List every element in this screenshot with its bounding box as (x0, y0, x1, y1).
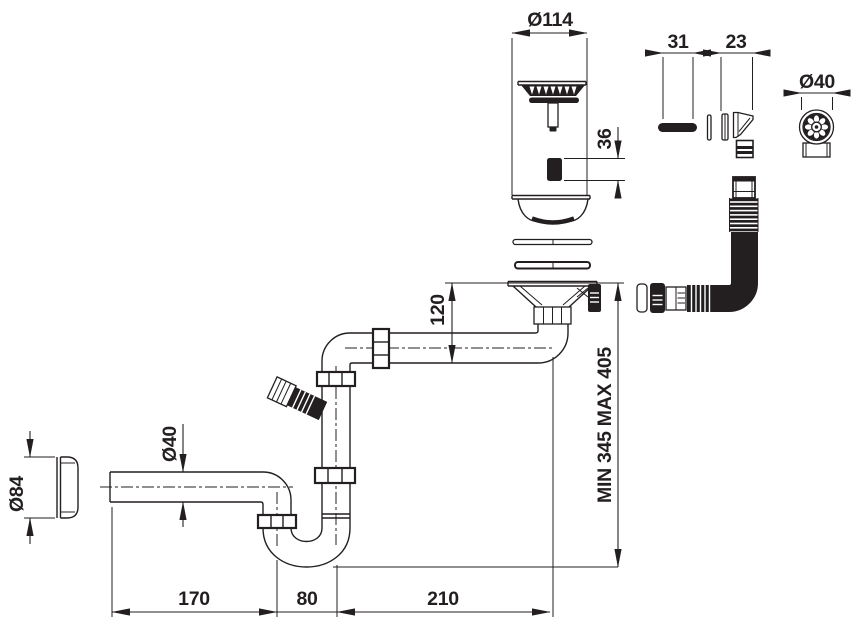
dim-hose-end-diameter: Ø40 (784, 71, 850, 93)
dim-drop-height: 120 (427, 283, 452, 363)
trap-nut-right (315, 468, 355, 483)
outlet-pipe (110, 472, 291, 505)
flat-gasket (513, 240, 592, 245)
dim-label-cone-width: 23 (725, 31, 747, 53)
dim-label-screw-height: 36 (594, 128, 616, 150)
corrugated-hose (687, 177, 758, 312)
dim-label-install-height: MIN 345 MAX 405 (594, 347, 616, 503)
dim-label-drop-height: 120 (427, 294, 449, 326)
hose-nut (650, 283, 665, 313)
dim-label-outlet-length: 170 (178, 588, 210, 610)
drawing-canvas: Ø114 36 31 23 Ø40 120 MIN 345 MAX 405 Ø4… (0, 0, 864, 642)
dim-label-pipe-diameter: Ø40 (159, 426, 181, 462)
hose-connector (666, 287, 686, 310)
dim-label-trap-width: 80 (296, 588, 318, 610)
dim-label-hose-end-diameter: Ø40 (799, 71, 835, 93)
washer-b (722, 114, 728, 140)
wall-cap (57, 457, 78, 518)
dim-label-cap-diameter: Ø84 (6, 476, 28, 512)
dim-cone-width: 23 (703, 31, 770, 53)
dim-install-height: MIN 345 MAX 405 (594, 283, 618, 567)
dim-label-offset-length: 210 (427, 588, 459, 610)
dim-cap-diameter: Ø84 (6, 431, 30, 544)
strainer-screw (547, 158, 562, 181)
strainer-stem (548, 103, 558, 127)
sink-flange (512, 196, 590, 223)
rubber-gasket (515, 262, 590, 269)
pipe-nut-upper (317, 372, 355, 386)
hose-top-connector (733, 177, 755, 198)
dim-outlet-length: 170 (112, 588, 277, 612)
p-trap (263, 500, 350, 567)
pipe-nut-horizontal (373, 329, 389, 368)
dim-screw-height: 36 (594, 127, 618, 196)
dim-trap-width: 80 (277, 588, 337, 612)
dim-label-pin-length: 31 (667, 31, 689, 53)
overflow-knob (577, 284, 601, 312)
dim-pipe-diameter: Ø40 (159, 424, 183, 527)
dim-offset-length: 210 (337, 588, 550, 612)
washer-a (708, 115, 712, 140)
cone-gasket (734, 113, 754, 158)
trap-nut-left (258, 515, 296, 528)
dim-strainer-diameter: Ø114 (512, 9, 587, 33)
hose-end-connector-front-view (800, 110, 834, 157)
technical-drawing-page: Ø114 36 31 23 Ø40 120 MIN 345 MAX 405 Ø4… (0, 0, 864, 642)
basket-strainer (518, 82, 586, 132)
dim-pin-length: 31 (645, 31, 711, 53)
dim-label-strainer-diameter: Ø114 (527, 9, 573, 31)
hose-corrugation (730, 198, 759, 232)
fixing-pin (658, 123, 697, 132)
hose-washer (637, 284, 647, 312)
strainer-body (445, 282, 624, 325)
